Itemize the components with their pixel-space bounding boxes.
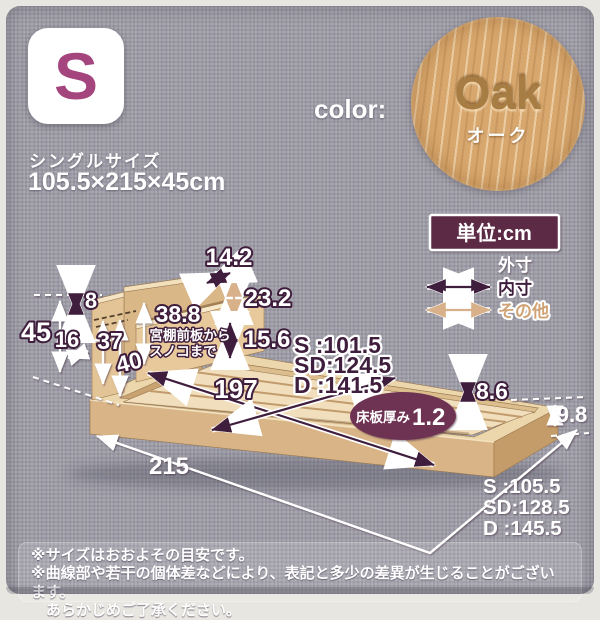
unit-badge-text: 単位:cm xyxy=(456,221,532,245)
bed-dimension-diagram: 単位:cm 外寸 内寸 その他 xyxy=(6,6,600,606)
dim-height-37: 37 xyxy=(97,328,123,354)
dim-inner-length: 197 xyxy=(214,374,257,404)
dim-shelf-note-line2: スノコまで xyxy=(149,344,217,359)
dim-panel-top: 8 xyxy=(85,288,97,313)
dim-inner-width-d: D :141.5 xyxy=(294,372,382,398)
floor-plate-value: 1.2 xyxy=(412,404,445,431)
dim-headboard-upper: 23.2 xyxy=(245,285,292,312)
dim-outer-length: 215 xyxy=(149,453,189,480)
disclaimer-note: ※サイズはおおよその目安です。 ※曲線部や若干の個体差などにより、表記と多少の差… xyxy=(18,542,582,602)
legend-other-label: その他 xyxy=(498,301,549,321)
floor-plate-badge: 床板厚み 1.2 xyxy=(350,392,456,440)
legend-inner-label: 内寸 xyxy=(498,278,532,298)
dim-total-height: 45 xyxy=(21,317,51,347)
dim-shelf-opening: 16 xyxy=(55,327,79,352)
disclaimer-line3: あらかじめご了承ください。 xyxy=(46,602,569,620)
legend: 外寸 内寸 その他 xyxy=(427,255,549,321)
unit-badge: 単位:cm xyxy=(430,215,559,250)
dim-outer-width-s: S :105.5 xyxy=(483,475,561,498)
dim-frame-inner-height: 8.6 xyxy=(476,378,508,404)
dim-shelf-board-gap: 15.6 xyxy=(244,326,291,353)
dim-shelf-note-value: 38.8 xyxy=(156,301,201,327)
dim-outer-width-sd: SD:128.5 xyxy=(483,496,570,519)
floor-plate-label: 床板厚み xyxy=(356,409,410,425)
fabric-background: S シングルサイズ 105.5×215×45cm color: Oak オーク xyxy=(6,6,594,594)
dim-shelf-depth: 14.2 xyxy=(206,244,253,271)
disclaimer-line1: ※サイズはおおよその目安です。 xyxy=(31,547,569,565)
dim-outer-width-d: D :145.5 xyxy=(483,517,562,540)
legend-outer-label: 外寸 xyxy=(498,255,532,275)
dim-frame-height: 9.8 xyxy=(557,402,588,427)
arrow-shelf-opening xyxy=(68,351,88,358)
dim-shelf-note-line1: 宮棚前板から xyxy=(150,327,231,343)
disclaimer-line2: ※曲線部や若干の個体差などにより、表記と多少の差異が生じることがございます。 xyxy=(31,565,569,602)
